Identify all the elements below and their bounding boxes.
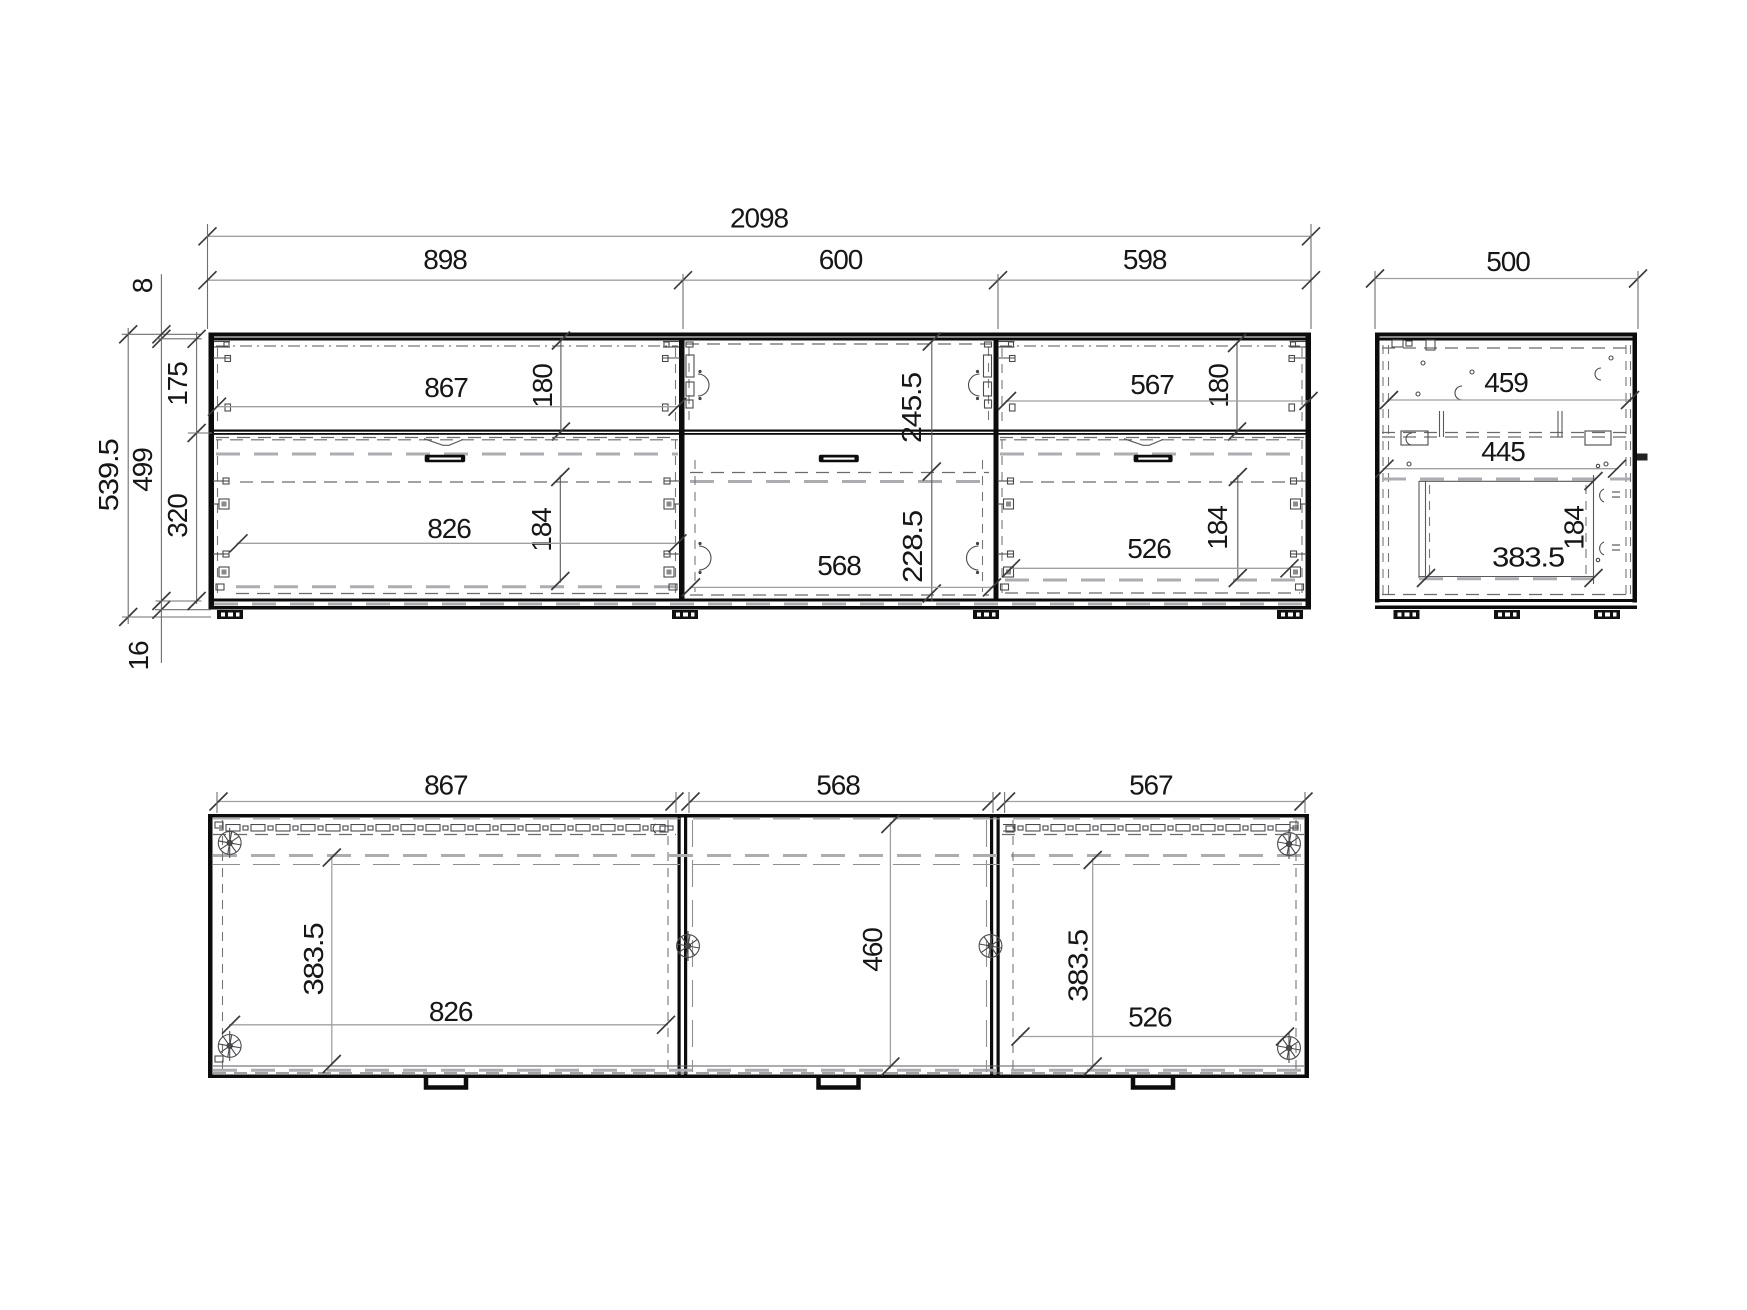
svg-text:526: 526 [1127, 533, 1171, 564]
svg-text:245.5: 245.5 [896, 372, 927, 443]
svg-text:826: 826 [429, 996, 473, 1027]
svg-text:500: 500 [1486, 246, 1530, 277]
svg-text:383.5: 383.5 [1063, 929, 1094, 1002]
svg-text:383.5: 383.5 [298, 923, 329, 996]
svg-text:184: 184 [526, 508, 557, 552]
svg-text:539.5: 539.5 [93, 439, 124, 512]
svg-text:600: 600 [819, 244, 863, 275]
svg-text:826: 826 [427, 513, 471, 544]
svg-text:499: 499 [127, 448, 158, 492]
svg-text:184: 184 [1558, 506, 1589, 550]
svg-text:460: 460 [857, 928, 888, 972]
svg-text:568: 568 [817, 550, 861, 581]
svg-text:867: 867 [424, 769, 468, 800]
svg-text:184: 184 [1202, 506, 1233, 550]
svg-text:2098: 2098 [730, 202, 788, 233]
svg-text:459: 459 [1484, 367, 1528, 398]
svg-text:598: 598 [1123, 244, 1167, 275]
svg-text:175: 175 [162, 362, 193, 406]
svg-text:567: 567 [1130, 369, 1174, 400]
svg-text:526: 526 [1128, 1001, 1172, 1032]
svg-text:16: 16 [123, 641, 154, 670]
svg-text:320: 320 [162, 494, 193, 538]
svg-text:567: 567 [1129, 769, 1173, 800]
svg-text:867: 867 [424, 372, 468, 403]
svg-text:383.5: 383.5 [1492, 541, 1565, 572]
svg-text:445: 445 [1481, 436, 1525, 467]
svg-text:898: 898 [423, 244, 467, 275]
svg-text:8: 8 [127, 278, 158, 293]
svg-text:228.5: 228.5 [897, 510, 928, 583]
svg-text:180: 180 [527, 364, 558, 408]
svg-text:568: 568 [816, 769, 860, 800]
